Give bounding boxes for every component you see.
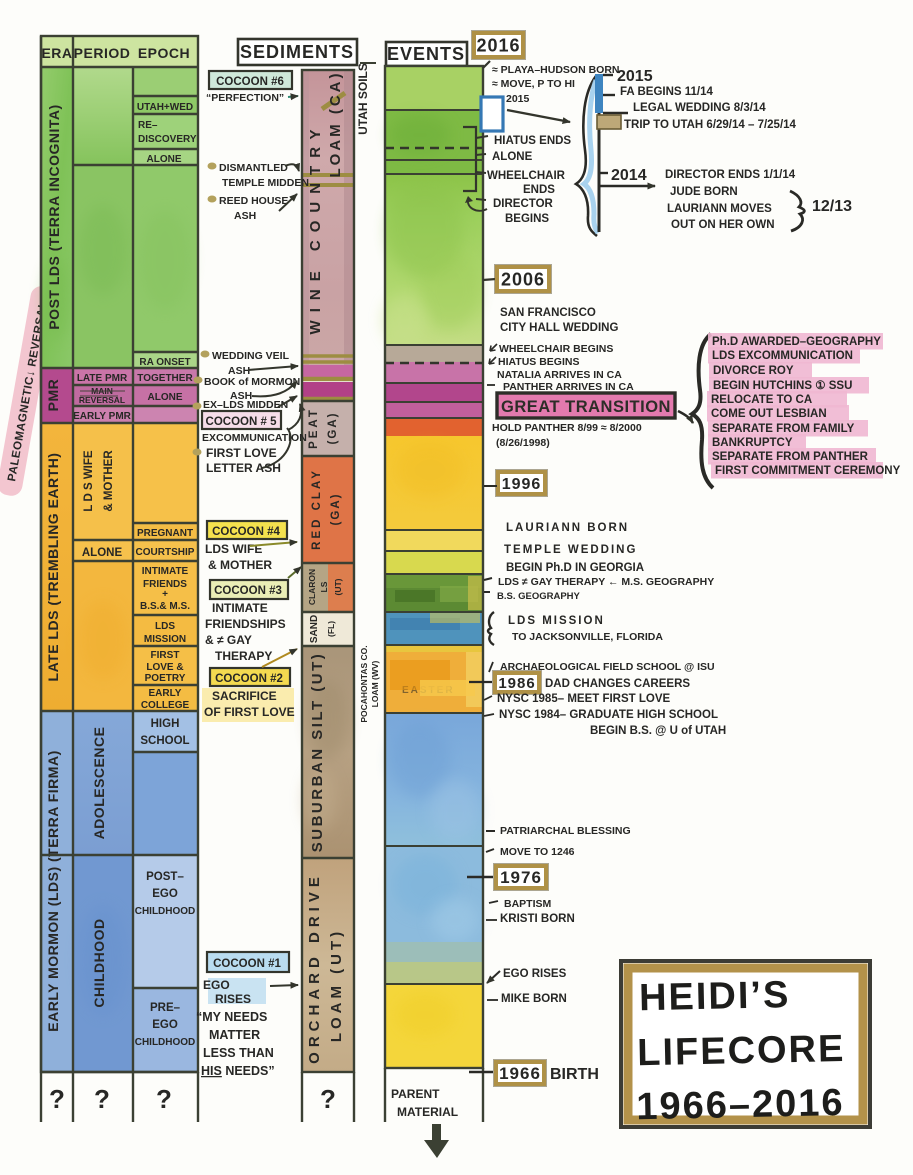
svg-text:WHEELCHAIR BEGINS: WHEELCHAIR BEGINS — [499, 343, 613, 355]
svg-text:TRIP TO UTAH 6/29/14 – 7/25/14: TRIP TO UTAH 6/29/14 – 7/25/14 — [624, 119, 797, 131]
svg-text:PEAT: PEAT — [308, 407, 320, 449]
svg-text:EVENTS: EVENTS — [387, 44, 465, 64]
svg-text:“MY NEEDS: “MY NEEDS — [196, 1010, 267, 1024]
svg-text:LESS THAN: LESS THAN — [203, 1046, 274, 1060]
svg-text:LDS WIFE: LDS WIFE — [205, 542, 262, 556]
svg-text:DIRECTOR ENDS 1/1/14: DIRECTOR ENDS 1/1/14 — [665, 169, 796, 181]
svg-text:MATERIAL: MATERIAL — [397, 1105, 458, 1119]
svg-text:ALONE: ALONE — [148, 392, 183, 403]
svg-text:LATE LDS (TREMBLING EARTH): LATE LDS (TREMBLING EARTH) — [45, 453, 61, 682]
svg-text:COCOON # 5: COCOON # 5 — [206, 416, 278, 428]
svg-text:1986: 1986 — [498, 675, 535, 692]
svg-text:& ≠ GAY: & ≠ GAY — [205, 633, 252, 647]
svg-text:BAPTISM: BAPTISM — [504, 898, 552, 910]
svg-text:& MOTHER: & MOTHER — [103, 450, 115, 512]
svg-text:HIATUS BEGINS: HIATUS BEGINS — [498, 356, 579, 368]
svg-text:SAN FRANCISCO: SAN FRANCISCO — [500, 307, 596, 319]
svg-text:RE–: RE– — [138, 120, 158, 131]
svg-text:KRISTI BORN: KRISTI BORN — [500, 913, 575, 925]
svg-text:TOGETHER: TOGETHER — [137, 373, 193, 384]
svg-text:LOAM (CA): LOAM (CA) — [327, 71, 344, 178]
svg-text:EPOCH: EPOCH — [138, 45, 190, 61]
svg-text:?: ? — [320, 1084, 336, 1114]
svg-text:CHILDHOOD: CHILDHOOD — [135, 1037, 196, 1048]
svg-text:L D S WIFE: L D S WIFE — [83, 450, 95, 511]
svg-text:INTIMATE: INTIMATE — [212, 601, 268, 615]
svg-text:SCHOOL: SCHOOL — [140, 735, 189, 747]
svg-text:EX–LDS MIDDEN: EX–LDS MIDDEN — [203, 399, 288, 411]
svg-text:RELOCATE TO CA: RELOCATE TO CA — [711, 394, 812, 406]
svg-text:WEDDING VEIL: WEDDING VEIL — [212, 350, 290, 362]
svg-text:NATALIA ARRIVES IN CA: NATALIA ARRIVES IN CA — [497, 369, 622, 381]
svg-text:COCOON #1: COCOON #1 — [213, 958, 281, 970]
svg-text:BOOK of MORMON: BOOK of MORMON — [204, 376, 300, 388]
svg-text:POST LDS (TERRA INCOGNITA): POST LDS (TERRA INCOGNITA) — [46, 104, 62, 329]
svg-text:BEGIN HUTCHINS ① SSU: BEGIN HUTCHINS ① SSU — [713, 379, 852, 392]
svg-text:(GA): (GA) — [327, 412, 339, 445]
svg-text:HOLD PANTHER 8/99 ≈ 8/2000: HOLD PANTHER 8/99 ≈ 8/2000 — [492, 422, 642, 434]
svg-text:NYSC 1984– GRADUATE HIGH SCHOO: NYSC 1984– GRADUATE HIGH SCHOOL — [499, 709, 718, 721]
svg-text:EGO: EGO — [203, 978, 230, 992]
svg-text:UTAH SOILS: UTAH SOILS — [356, 63, 370, 135]
svg-text:INTIMATE: INTIMATE — [142, 566, 189, 577]
svg-text:HIATUS ENDS: HIATUS ENDS — [494, 135, 571, 147]
svg-text:POST–: POST– — [146, 871, 184, 883]
svg-text:?: ? — [94, 1084, 110, 1114]
svg-text:2015: 2015 — [506, 93, 530, 105]
svg-text:DIVORCE ROY: DIVORCE ROY — [713, 365, 794, 377]
svg-text:LS: LS — [319, 581, 329, 592]
svg-text:THERAPY: THERAPY — [215, 649, 272, 663]
svg-text:1976: 1976 — [500, 868, 542, 887]
svg-text:JUDE BORN: JUDE BORN — [670, 186, 738, 198]
svg-text:COME OUT LESBIAN: COME OUT LESBIAN — [711, 408, 827, 420]
svg-text:HIS NEEDS”: HIS NEEDS” — [201, 1064, 275, 1078]
svg-text:EGO: EGO — [152, 1019, 178, 1031]
svg-text:GREAT TRANSITION: GREAT TRANSITION — [501, 398, 671, 416]
svg-text:EGO RISES: EGO RISES — [503, 968, 567, 980]
svg-text:POETRY: POETRY — [145, 673, 186, 684]
svg-text:ENDS: ENDS — [523, 184, 555, 196]
svg-text:TEMPLE WEDDING: TEMPLE WEDDING — [504, 544, 637, 556]
svg-text:CHILDHOOD: CHILDHOOD — [135, 906, 196, 917]
svg-text:CLARON: CLARON — [307, 569, 317, 605]
svg-text:UTAH+WED: UTAH+WED — [137, 102, 193, 113]
svg-text:CHILDHOOD: CHILDHOOD — [91, 918, 107, 1007]
svg-text:WHEELCHAIR: WHEELCHAIR — [487, 170, 566, 182]
svg-text:“PERFECTION”: “PERFECTION” — [206, 92, 284, 104]
svg-text:DAD CHANGES CAREERS: DAD CHANGES CAREERS — [545, 678, 690, 690]
svg-text:B.S.& M.S.: B.S.& M.S. — [140, 601, 190, 612]
svg-text:ERA: ERA — [41, 45, 72, 61]
svg-text:LATE PMR: LATE PMR — [77, 373, 128, 384]
svg-text:RA ONSET: RA ONSET — [139, 357, 190, 368]
svg-text:PATRIARCHAL BLESSING: PATRIARCHAL BLESSING — [500, 825, 631, 837]
svg-text:EGO: EGO — [152, 888, 178, 900]
svg-text:FIRST: FIRST — [151, 650, 180, 661]
svg-text:CITY HALL WEDDING: CITY HALL WEDDING — [500, 322, 618, 334]
svg-text:ASH: ASH — [234, 210, 256, 222]
svg-text:COCOON #3: COCOON #3 — [214, 585, 282, 597]
svg-text:MISSION: MISSION — [144, 634, 186, 645]
svg-text:PRE–: PRE– — [150, 1002, 181, 1014]
svg-text:COCOON #6: COCOON #6 — [216, 76, 284, 88]
svg-text:SEPARATE FROM PANTHER: SEPARATE FROM PANTHER — [712, 451, 869, 463]
svg-text:12/13: 12/13 — [812, 198, 852, 215]
svg-text:PMR: PMR — [45, 379, 61, 412]
svg-text:OF FIRST LOVE: OF FIRST LOVE — [204, 705, 295, 719]
svg-text:1996: 1996 — [502, 476, 542, 493]
svg-text:OUT ON HER OWN: OUT ON HER OWN — [671, 219, 775, 231]
svg-text:LEGAL WEDDING 8/3/14: LEGAL WEDDING 8/3/14 — [633, 102, 766, 114]
svg-text:?: ? — [49, 1084, 65, 1114]
svg-text:RED CLAY: RED CLAY — [311, 468, 323, 550]
svg-text:Ph.D AWARDED–GEOGRAPHY: Ph.D AWARDED–GEOGRAPHY — [712, 336, 881, 348]
svg-text:POCAHONTAS CO.: POCAHONTAS CO. — [359, 645, 369, 722]
svg-text:DIRECTOR: DIRECTOR — [493, 198, 554, 210]
svg-text:ADOLESCENCE: ADOLESCENCE — [91, 727, 107, 840]
svg-text:COLLEGE: COLLEGE — [141, 700, 190, 711]
svg-text:LOAM (WV): LOAM (WV) — [370, 660, 380, 707]
svg-text:1966: 1966 — [499, 1064, 541, 1083]
svg-text:PARENT: PARENT — [391, 1087, 440, 1101]
svg-text:2016: 2016 — [476, 35, 520, 55]
svg-text:DISMANTLED: DISMANTLED — [219, 162, 288, 174]
svg-text:(FL): (FL) — [326, 621, 336, 637]
svg-text:MIKE BORN: MIKE BORN — [501, 993, 567, 1005]
svg-text:BEGINS: BEGINS — [505, 213, 549, 225]
svg-text:BEGIN B.S. @ U of UTAH: BEGIN B.S. @ U of UTAH — [590, 725, 726, 737]
svg-text:1966–2016: 1966–2016 — [636, 1082, 845, 1128]
svg-text:SEDIMENTS: SEDIMENTS — [240, 42, 354, 62]
svg-text:RISES: RISES — [215, 992, 251, 1006]
svg-text:SACRIFICE: SACRIFICE — [212, 689, 277, 703]
svg-text:ORCHARD DRIVE: ORCHARD DRIVE — [306, 872, 323, 1064]
svg-text:TEMPLE MIDDEN: TEMPLE MIDDEN — [222, 177, 309, 189]
svg-text:+: + — [162, 589, 168, 600]
svg-text:ALONE: ALONE — [492, 151, 533, 163]
svg-text:HIGH: HIGH — [151, 718, 180, 730]
svg-text:NYSC 1985– MEET FIRST LOVE: NYSC 1985– MEET FIRST LOVE — [497, 693, 671, 705]
svg-text:COCOON #4: COCOON #4 — [212, 526, 280, 538]
svg-text:2014: 2014 — [611, 167, 647, 184]
svg-text:PANTHER ARRIVES IN CA: PANTHER ARRIVES IN CA — [503, 381, 634, 393]
svg-text:LDS EXCOMMUNICATION: LDS EXCOMMUNICATION — [712, 350, 853, 362]
svg-text:LOAM (UT): LOAM (UT) — [328, 928, 345, 1042]
svg-text:(GA): (GA) — [330, 493, 342, 526]
svg-text:2015: 2015 — [617, 68, 653, 85]
svg-text:& MOTHER: & MOTHER — [208, 558, 272, 572]
svg-text:LAURIANN MOVES: LAURIANN MOVES — [667, 203, 772, 215]
svg-text:SAND: SAND — [309, 615, 320, 643]
svg-text:B.S. GEOGRAPHY: B.S. GEOGRAPHY — [497, 591, 581, 602]
svg-text:FRIENDSHIPS: FRIENDSHIPS — [205, 617, 286, 631]
svg-text:FA BEGINS 11/14: FA BEGINS 11/14 — [620, 86, 713, 98]
svg-text:≈ MOVE, P TO HI: ≈ MOVE, P TO HI — [492, 78, 575, 90]
svg-text:LETTER ASH: LETTER ASH — [206, 461, 281, 475]
svg-text:SUBURBAN SILT (UT): SUBURBAN SILT (UT) — [309, 652, 326, 853]
svg-text:EARLY PMR: EARLY PMR — [73, 411, 132, 422]
svg-text:MOVE TO 1246: MOVE TO 1246 — [500, 846, 575, 858]
svg-text:ALONE: ALONE — [147, 154, 182, 165]
svg-text:LOVE &: LOVE & — [146, 662, 183, 673]
svg-text:COURTSHIP: COURTSHIP — [136, 547, 195, 558]
svg-text:LIFECORE: LIFECORE — [637, 1028, 846, 1074]
svg-text:BANKRUPTCY: BANKRUPTCY — [712, 437, 793, 449]
svg-text:EARLY: EARLY — [149, 688, 182, 699]
svg-text:PERIOD: PERIOD — [74, 45, 131, 61]
svg-text:BEGIN Ph.D IN GEORGIA: BEGIN Ph.D IN GEORGIA — [506, 562, 644, 574]
svg-text:WINE COUNTRY: WINE COUNTRY — [307, 122, 324, 335]
svg-text:COCOON #2: COCOON #2 — [215, 673, 283, 685]
svg-text:2006: 2006 — [501, 269, 545, 289]
svg-text:LDS MISSION: LDS MISSION — [508, 615, 605, 627]
svg-text:FIRST COMMITMENT CEREMONY: FIRST COMMITMENT CEREMONY — [715, 465, 901, 477]
svg-text:(UT): (UT) — [333, 578, 343, 595]
svg-text:SEPARATE FROM FAMILY: SEPARATE FROM FAMILY — [712, 423, 855, 435]
svg-text:DISCOVERY: DISCOVERY — [138, 134, 197, 145]
svg-text:TO JACKSONVILLE, FLORIDA: TO JACKSONVILLE, FLORIDA — [512, 631, 663, 643]
svg-text:(8/26/1998): (8/26/1998) — [496, 437, 550, 449]
svg-text:FIRST LOVE: FIRST LOVE — [206, 446, 277, 460]
svg-text:LDS: LDS — [155, 621, 175, 632]
svg-text:EARLY MORMON (LDS) (TERRA FIRM: EARLY MORMON (LDS) (TERRA FIRMA) — [45, 750, 61, 1031]
svg-text:ALONE: ALONE — [82, 547, 123, 559]
svg-text:MATTER: MATTER — [209, 1028, 260, 1042]
svg-text:REED HOUSE: REED HOUSE — [219, 195, 288, 207]
svg-text:LAURIANN BORN: LAURIANN BORN — [506, 522, 629, 534]
svg-text:?: ? — [156, 1084, 172, 1114]
svg-text:HEIDIʼS: HEIDIʼS — [639, 974, 791, 1019]
svg-text:BIRTH: BIRTH — [550, 1066, 599, 1083]
svg-text:LDS ≠ GAY THERAPY ← M.S. GEOGR: LDS ≠ GAY THERAPY ← M.S. GEOGRAPHY — [498, 576, 714, 588]
svg-text:PREGNANT: PREGNANT — [137, 528, 193, 539]
